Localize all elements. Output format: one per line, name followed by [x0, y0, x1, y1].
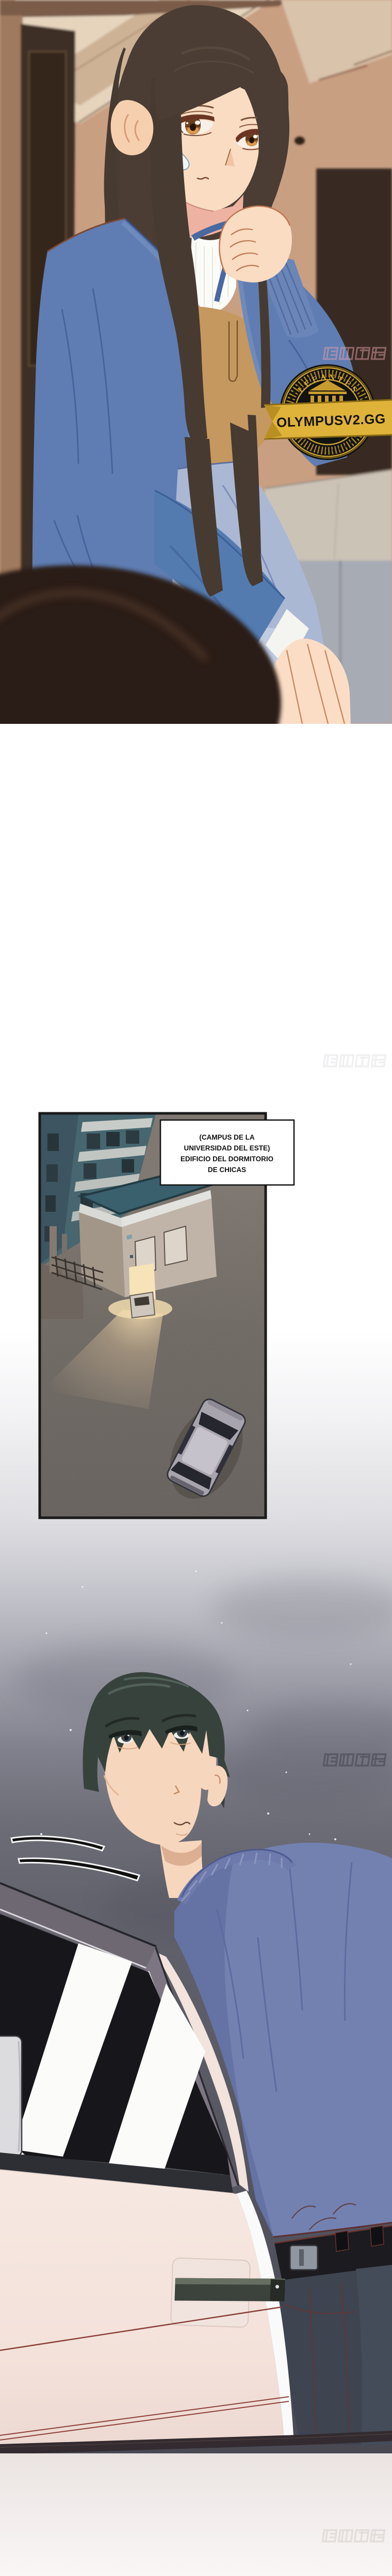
svg-text:EDIFICIO DEL DORMITORIO: EDIFICIO DEL DORMITORIO [181, 1155, 273, 1163]
svg-text:(CAMPUS DE LA: (CAMPUS DE LA [199, 1133, 254, 1141]
svg-text:UNIVERSIDAD DEL ESTE): UNIVERSIDAD DEL ESTE) [184, 1144, 270, 1152]
svg-text:DE CHICAS: DE CHICAS [208, 1166, 246, 1174]
